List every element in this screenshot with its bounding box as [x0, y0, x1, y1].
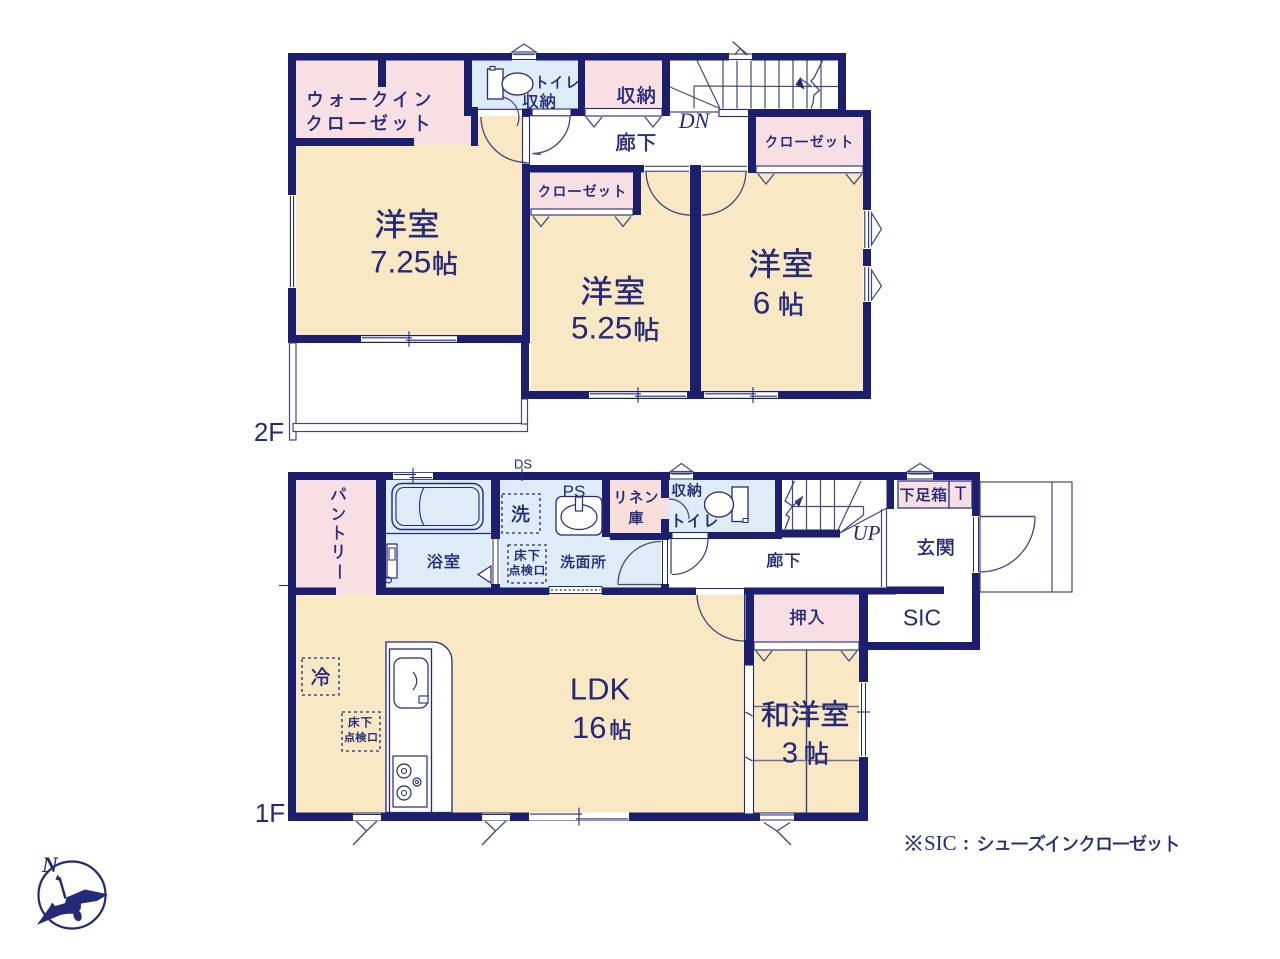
svg-text:SIC: SIC	[903, 605, 941, 631]
svg-text:T: T	[955, 484, 967, 505]
svg-text:PS: PS	[563, 482, 586, 501]
svg-text:SIC: SIC	[924, 831, 957, 855]
svg-text:UP: UP	[853, 521, 881, 545]
svg-text:1F: 1F	[255, 798, 285, 828]
svg-text:3: 3	[782, 738, 798, 770]
svg-text:7.25: 7.25	[370, 244, 431, 280]
svg-text:DN: DN	[678, 108, 711, 133]
svg-text:DS: DS	[514, 457, 532, 472]
svg-text:LDK: LDK	[570, 672, 631, 707]
svg-text:5.25: 5.25	[571, 310, 632, 346]
svg-text:N: N	[41, 852, 59, 877]
svg-text:16: 16	[572, 710, 606, 745]
svg-text:6: 6	[753, 285, 771, 321]
svg-text:2F: 2F	[254, 417, 284, 447]
